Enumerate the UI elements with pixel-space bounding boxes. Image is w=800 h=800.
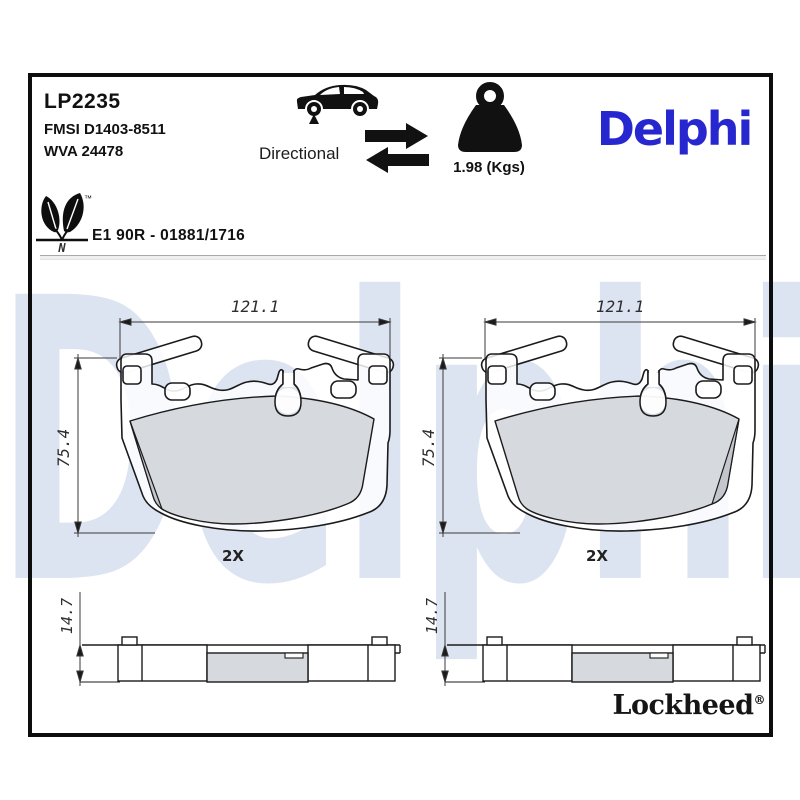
arrow-left-shaft (388, 154, 429, 166)
car-wheel-front-hub (311, 106, 317, 112)
lockheed-logo-text: Lockheed (612, 690, 753, 721)
dim-arrow (440, 522, 446, 533)
leaf-letter: N (57, 241, 66, 255)
directional-label: Directional (259, 144, 339, 164)
car-wheel-rear-hub (357, 106, 363, 112)
arrow-right-shaft (365, 130, 406, 142)
kettlebell-handle (480, 86, 500, 106)
weight-value: 1.98 (Kgs) (439, 159, 539, 176)
dim-arrow (440, 358, 446, 369)
registered-symbol: ® (754, 693, 766, 707)
height-dim-value: 75.4 (420, 429, 438, 468)
width-dim-value: 121.1 (231, 297, 279, 316)
dim-arrow (77, 671, 83, 682)
directional-arrows-icon (364, 121, 430, 175)
arrow-right-head (406, 123, 428, 149)
datasheet-page: Delphi LP2235 FMSI D1403-8511 WVA 24478 … (0, 0, 800, 800)
front-view-right: 121.1 75.4 (420, 280, 770, 550)
thickness-dim-value: 14.7 (58, 598, 76, 634)
axle-position-arrow-icon (309, 114, 319, 124)
arrow-left-head (366, 147, 388, 173)
lockheed-logo: Lockheed® (555, 690, 765, 721)
wva-code: WVA 24478 (44, 143, 123, 160)
dim-arrow (442, 671, 448, 682)
side-view-right: 14.7 (410, 578, 770, 690)
delphi-logo: Delphi (594, 102, 754, 156)
quantity-label-left: 2X (198, 547, 268, 565)
kettlebell-body (458, 105, 522, 152)
dim-arrow (442, 645, 448, 656)
dim-arrow (75, 358, 81, 369)
leaf-eco-icon: N (34, 192, 90, 256)
dim-arrow (120, 319, 131, 325)
fmsi-code: FMSI D1403-8511 (44, 121, 166, 138)
thickness-dim-value: 14.7 (423, 598, 441, 634)
dim-arrow (77, 645, 83, 656)
section-divider (40, 255, 766, 260)
dim-arrow (744, 319, 755, 325)
width-dim-value: 121.1 (596, 297, 644, 316)
dim-arrow (379, 319, 390, 325)
height-dim-value: 75.4 (55, 429, 73, 468)
side-view-left: 14.7 (45, 578, 405, 690)
part-number: LP2235 (44, 90, 121, 114)
trademark-symbol: ™ (84, 194, 92, 203)
dim-arrow (75, 522, 81, 533)
front-view-left: 121.1 75.4 (55, 280, 405, 550)
approval-text: E1 90R - 01881/1716 (92, 227, 245, 245)
weight-kettlebell-icon (451, 82, 529, 156)
quantity-label-right: 2X (562, 547, 632, 565)
leaf-left (41, 196, 59, 232)
dim-arrow (485, 319, 496, 325)
